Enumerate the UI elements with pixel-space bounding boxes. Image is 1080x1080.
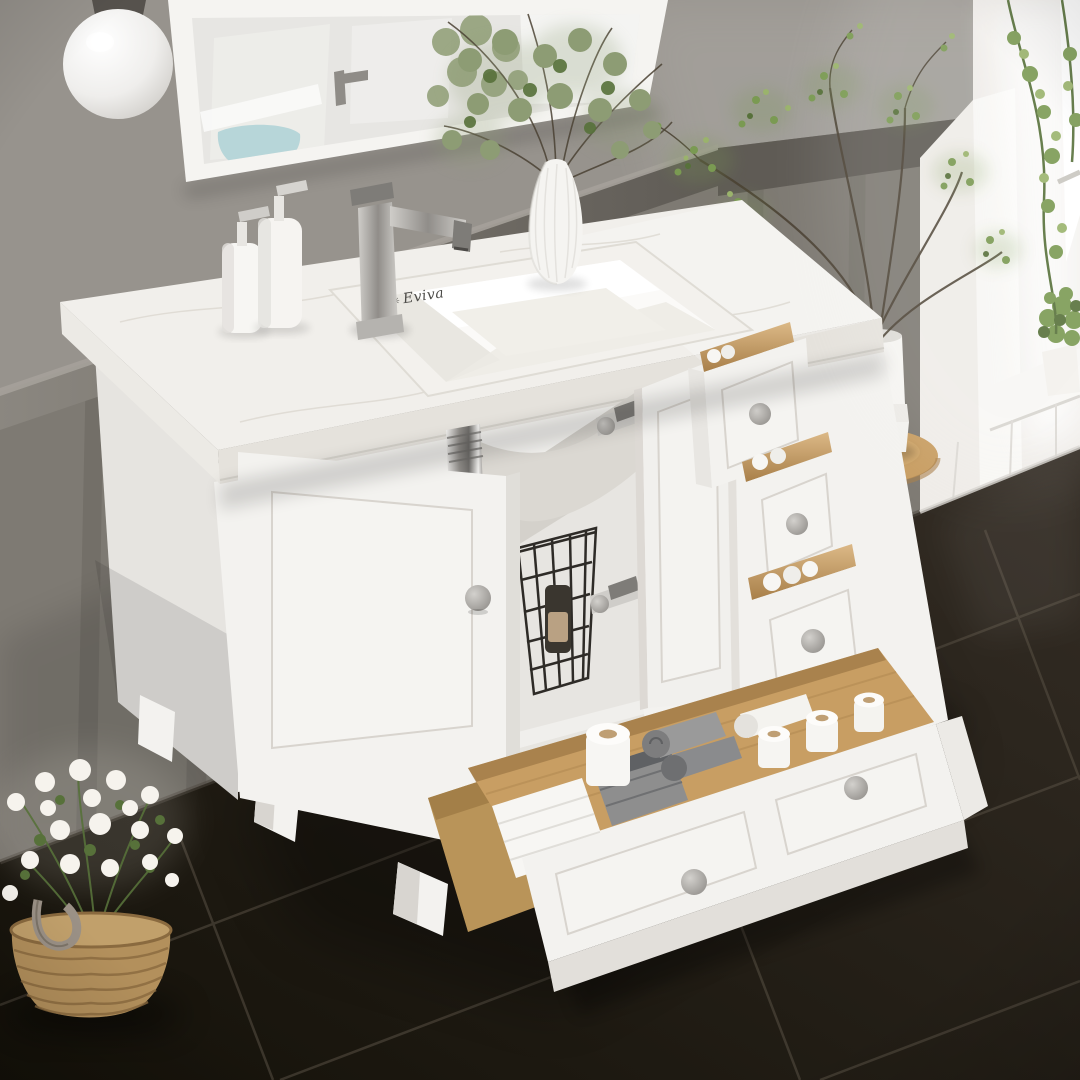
bathroom-scene: ✳Eviva [0, 0, 1080, 1080]
vignette [0, 0, 1080, 1080]
